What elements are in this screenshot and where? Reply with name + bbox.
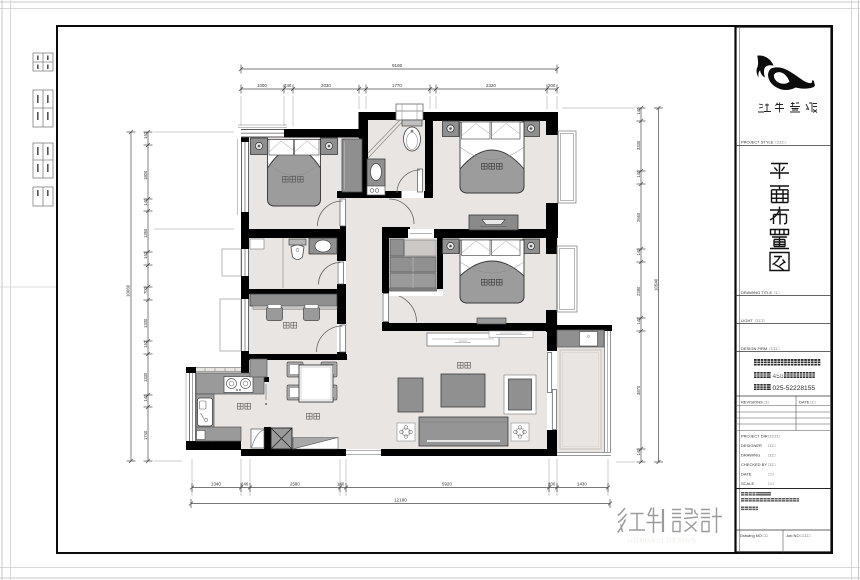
svg-text:SCALE: SCALE	[741, 481, 754, 486]
svg-text:1000: 1000	[257, 83, 267, 88]
svg-text:10540: 10540	[653, 278, 658, 291]
svg-text:DESIGN FIRM □□□□: DESIGN FIRM □□□□	[741, 346, 780, 351]
svg-text:140: 140	[636, 448, 641, 456]
svg-text:1350: 1350	[143, 228, 148, 238]
svg-text:2320: 2320	[486, 83, 496, 88]
svg-text:140: 140	[337, 482, 345, 487]
svg-text:140: 140	[143, 394, 148, 402]
svg-text:140: 140	[143, 340, 148, 348]
svg-text:240: 240	[241, 482, 249, 487]
svg-text:□ □: □ □	[768, 472, 775, 477]
svg-text:DATE: DATE	[741, 472, 752, 477]
svg-text:025-52228155: 025-52228155	[773, 385, 816, 392]
svg-text:REVISIONS □□: REVISIONS □□	[741, 400, 769, 405]
svg-text:□□□: □□□	[768, 443, 776, 448]
svg-text:9160: 9160	[392, 63, 403, 68]
svg-text:12180: 12180	[394, 498, 407, 503]
svg-text:DESIGNER: DESIGNER	[741, 443, 762, 448]
svg-text:□□□: □□□	[768, 462, 776, 467]
svg-text:Job NO □□□□: Job NO □□□□	[786, 533, 811, 538]
svg-text:140: 140	[143, 198, 148, 206]
svg-text:PROJECT STYLE □□□□: PROJECT STYLE □□□□	[741, 140, 786, 145]
svg-text:3330: 3330	[636, 140, 641, 150]
svg-text:□□□□□: □□□□□	[768, 434, 781, 439]
svg-text:PROJECT DIR: PROJECT DIR	[741, 434, 768, 439]
svg-text:Drawing NO □□: Drawing NO □□	[740, 533, 768, 538]
svg-text:3870: 3870	[636, 385, 641, 395]
svg-text:□□□: □□□	[768, 453, 776, 458]
svg-text:1330: 1330	[143, 372, 148, 382]
svg-text:1770: 1770	[392, 83, 402, 88]
svg-text:240: 240	[284, 83, 292, 88]
svg-text:700: 700	[143, 286, 148, 294]
svg-text:□ □: □ □	[768, 481, 775, 486]
svg-text:1740: 1740	[143, 430, 148, 440]
svg-text:140: 140	[636, 317, 641, 325]
svg-text:140: 140	[636, 107, 641, 115]
svg-text:1330: 1330	[143, 318, 148, 328]
svg-text:DRAWING TITLE □□: DRAWING TITLE □□	[741, 290, 780, 295]
svg-text:2660: 2660	[636, 212, 641, 222]
svg-text:1800: 1800	[143, 170, 148, 180]
svg-text:CHECKED BY: CHECKED BY	[741, 462, 767, 467]
svg-text:LIGHT □□□□: LIGHT □□□□	[741, 318, 765, 323]
svg-text:5920: 5920	[442, 482, 452, 487]
svg-text:10060: 10060	[126, 284, 131, 297]
svg-text:200: 200	[548, 482, 556, 487]
svg-text:140: 140	[636, 170, 641, 178]
svg-text:DATE □□: DATE □□	[799, 400, 816, 405]
svg-text:DRAWING: DRAWING	[741, 453, 760, 458]
svg-text:140: 140	[636, 248, 641, 256]
svg-text:200: 200	[548, 83, 556, 88]
svg-text:HONGNIU DESIGN: HONGNIU DESIGN	[628, 538, 697, 545]
svg-text:2580: 2580	[290, 482, 300, 487]
svg-text:1430: 1430	[577, 482, 587, 487]
svg-text:140: 140	[143, 251, 148, 259]
svg-text:140: 140	[143, 131, 148, 139]
svg-text:2030: 2030	[321, 83, 331, 88]
svg-text:1340: 1340	[211, 482, 221, 487]
svg-text:2280: 2280	[636, 286, 641, 296]
